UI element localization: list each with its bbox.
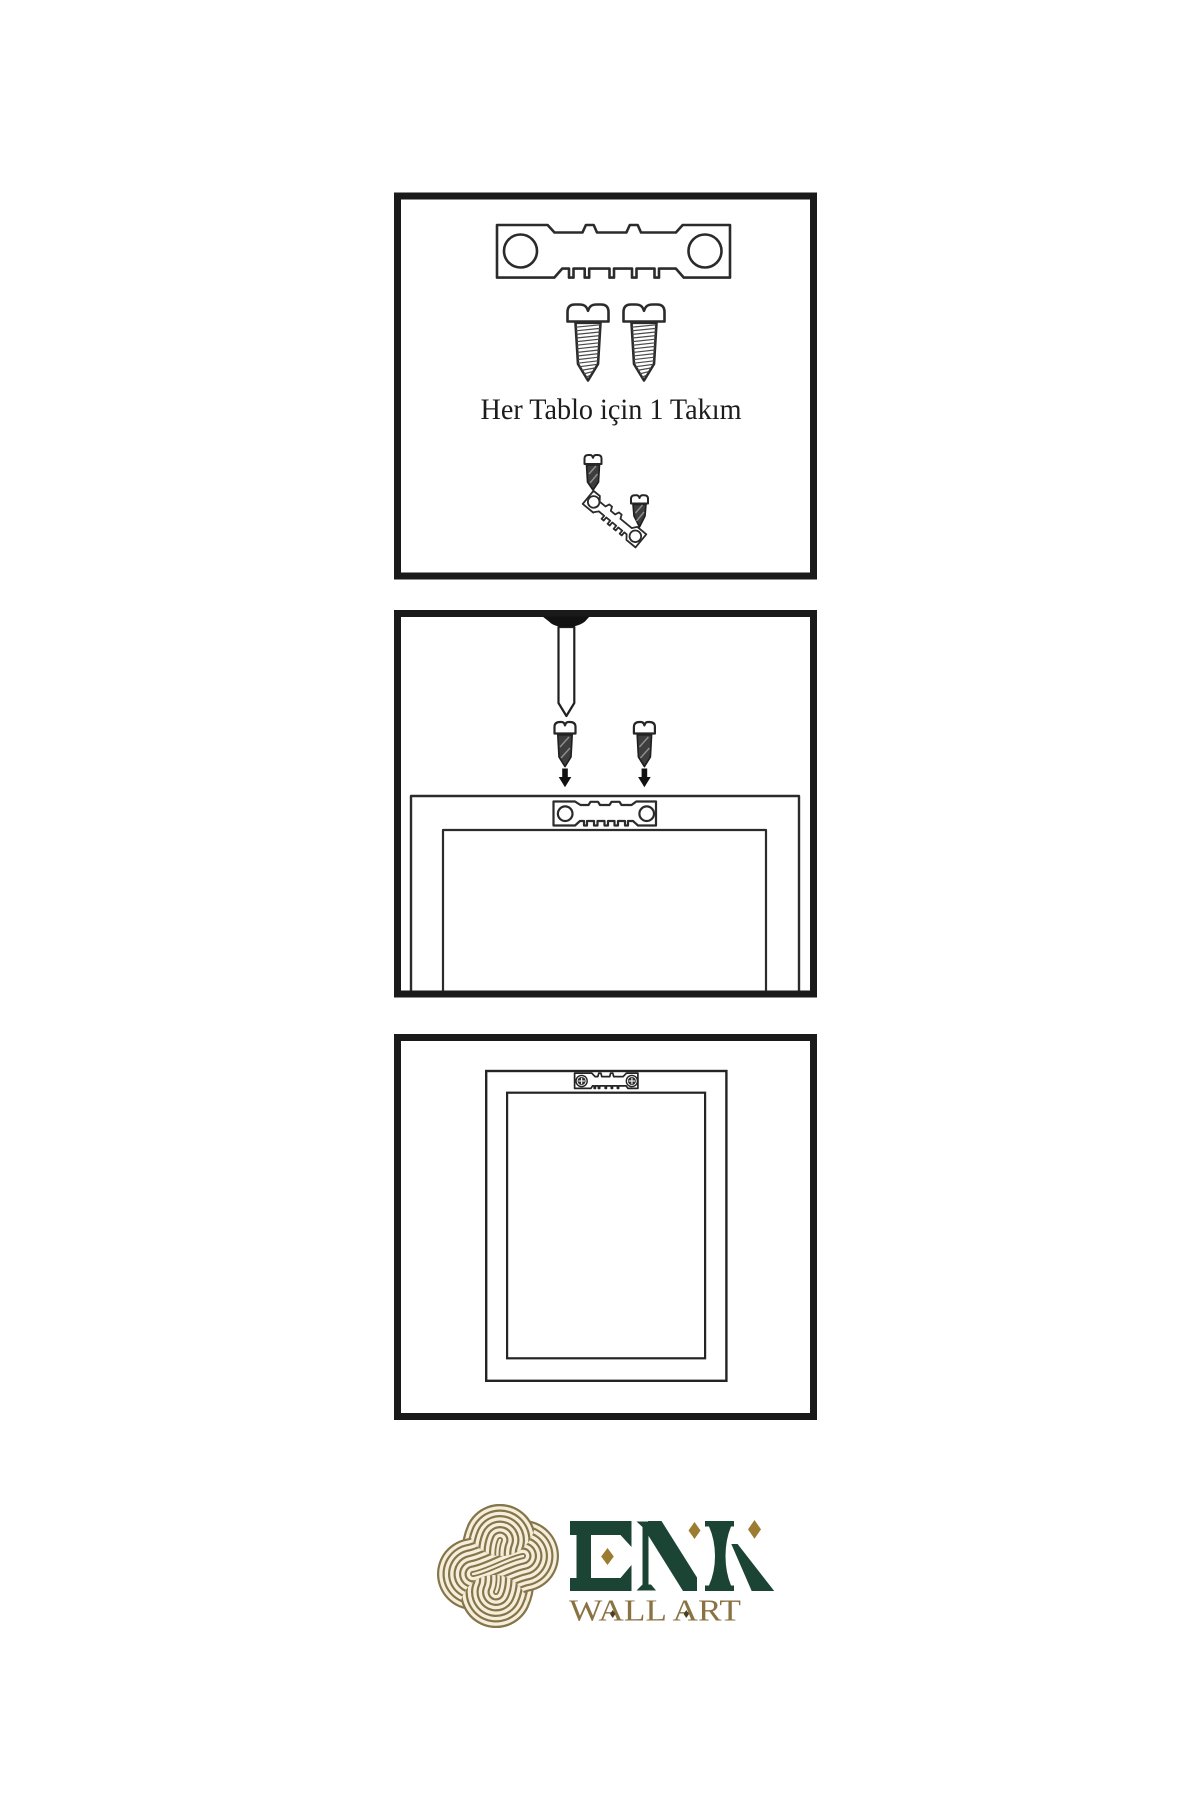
svg-text:WALL ART: WALL ART <box>569 1593 741 1628</box>
svg-text:Her Tablo için 1 Takım: Her Tablo için 1 Takım <box>481 393 742 426</box>
